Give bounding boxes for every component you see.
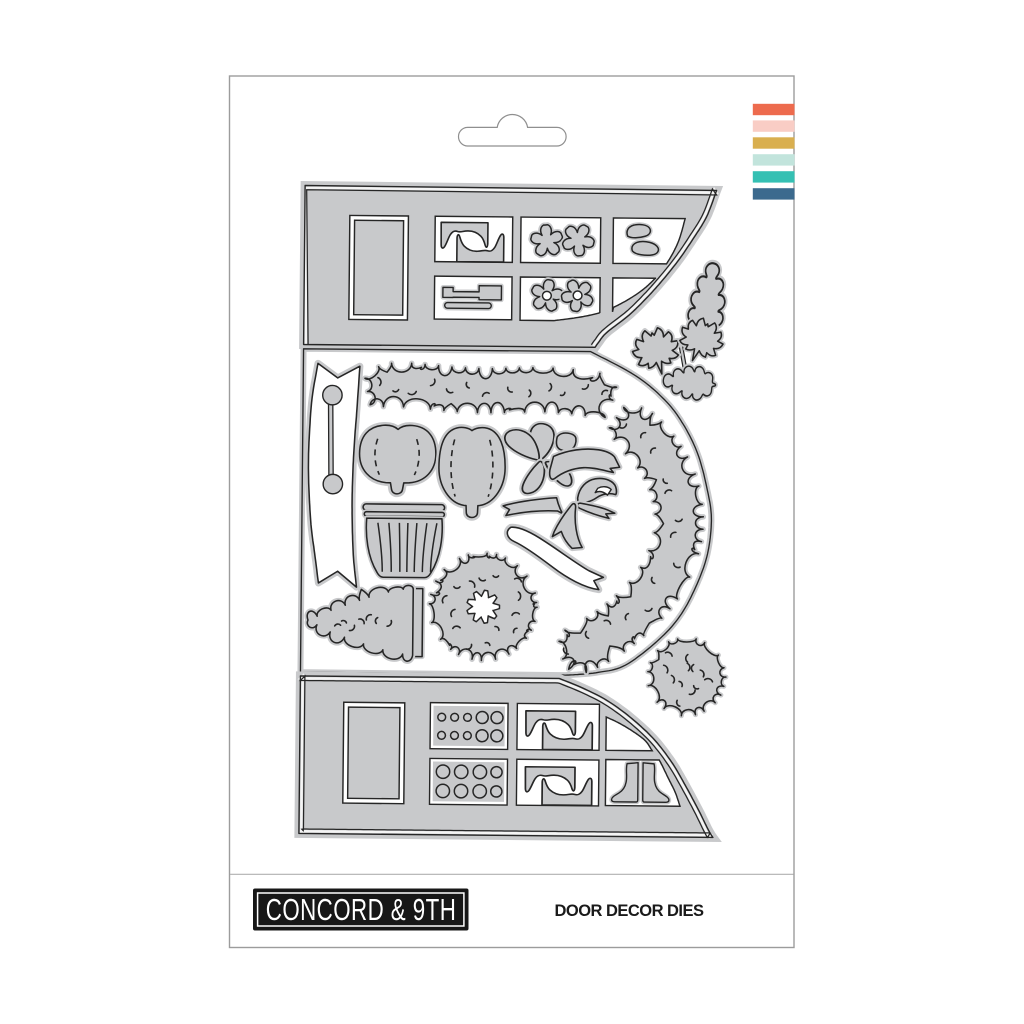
svg-text:DOOR DECOR DIES: DOOR DECOR DIES [555,902,707,920]
svg-text:CONCORD & 9TH: CONCORD & 9TH [266,892,456,926]
